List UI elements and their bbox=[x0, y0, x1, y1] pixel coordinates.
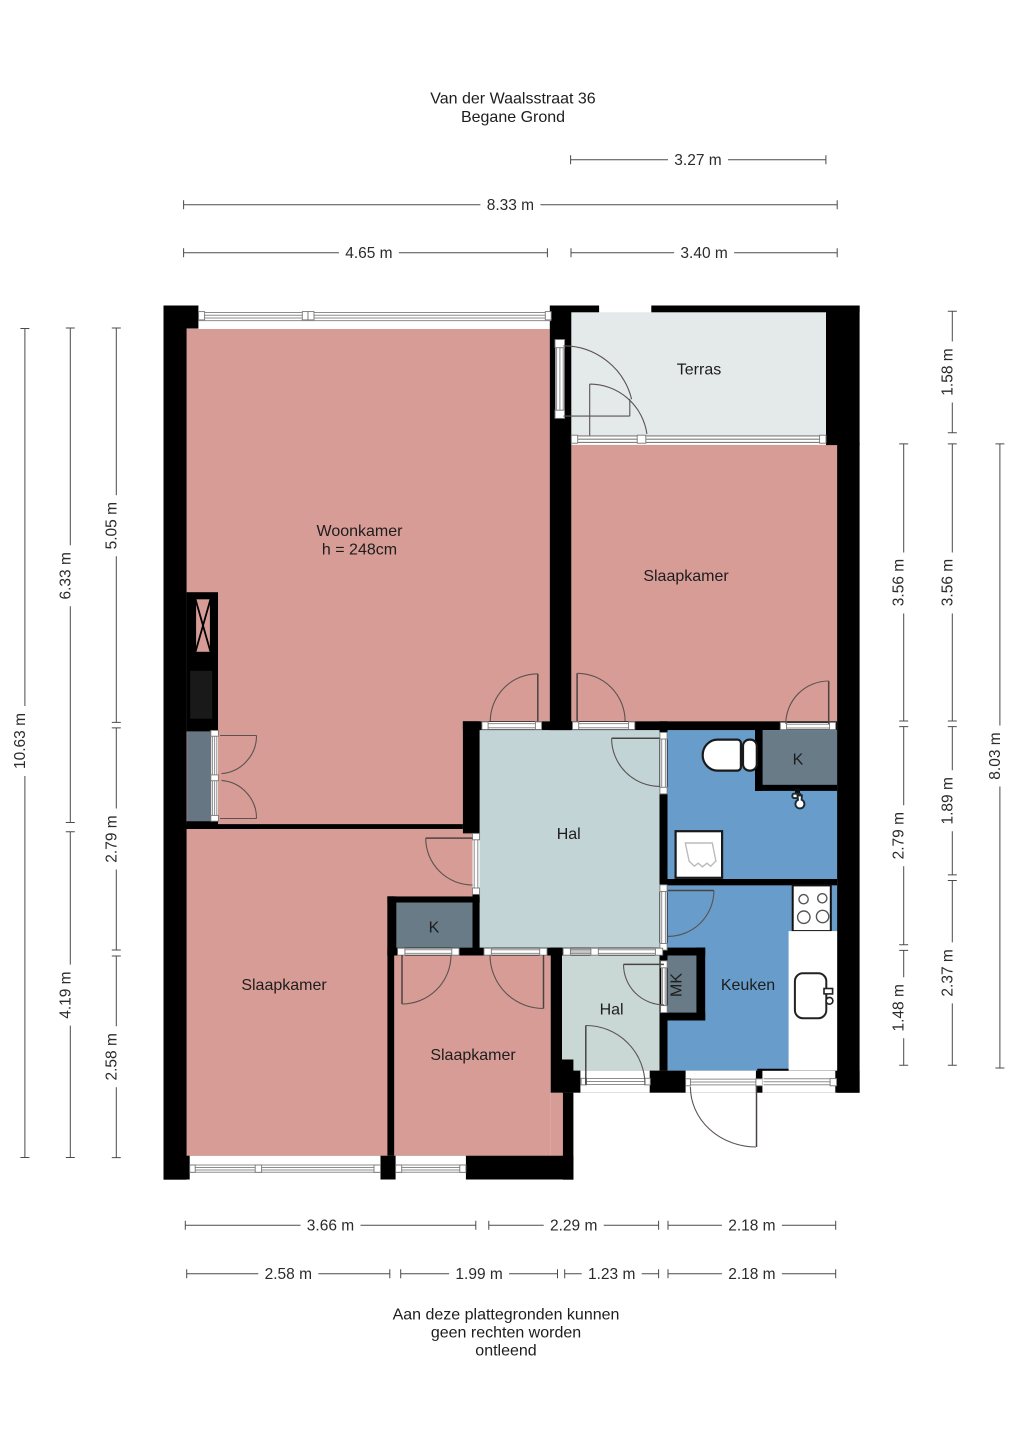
svg-text:Van der Waalsstraat 36: Van der Waalsstraat 36 bbox=[430, 91, 596, 108]
svg-text:3.27 m: 3.27 m bbox=[674, 152, 721, 169]
svg-text:Slaapkamer: Slaapkamer bbox=[430, 1047, 516, 1064]
svg-text:3.56 m: 3.56 m bbox=[939, 559, 956, 606]
svg-text:geen rechten worden: geen rechten worden bbox=[431, 1325, 581, 1342]
svg-text:3.56 m: 3.56 m bbox=[891, 559, 908, 606]
svg-text:8.03 m: 8.03 m bbox=[987, 732, 1004, 779]
svg-text:Slaapkamer: Slaapkamer bbox=[241, 977, 327, 994]
svg-text:K: K bbox=[429, 920, 440, 937]
svg-text:Hal: Hal bbox=[557, 826, 581, 843]
svg-text:1.23 m: 1.23 m bbox=[588, 1266, 635, 1283]
svg-text:8.33 m: 8.33 m bbox=[487, 197, 534, 214]
svg-text:10.63 m: 10.63 m bbox=[12, 713, 29, 769]
svg-text:Keuken: Keuken bbox=[721, 977, 775, 994]
svg-text:3.40 m: 3.40 m bbox=[680, 245, 727, 262]
svg-text:Slaapkamer: Slaapkamer bbox=[643, 568, 729, 585]
svg-text:6.33 m: 6.33 m bbox=[57, 552, 74, 599]
svg-text:Woonkamer: Woonkamer bbox=[317, 523, 404, 540]
svg-text:4.19 m: 4.19 m bbox=[57, 971, 74, 1018]
svg-text:1.89 m: 1.89 m bbox=[939, 777, 956, 824]
svg-text:1.48 m: 1.48 m bbox=[891, 984, 908, 1031]
svg-text:4.65 m: 4.65 m bbox=[345, 245, 392, 262]
svg-text:3.66 m: 3.66 m bbox=[307, 1218, 354, 1235]
svg-text:2.18 m: 2.18 m bbox=[728, 1266, 775, 1283]
svg-text:h = 248cm: h = 248cm bbox=[322, 542, 397, 559]
svg-text:Aan deze plattegronden kunnen: Aan deze plattegronden kunnen bbox=[393, 1307, 620, 1324]
svg-text:2.29 m: 2.29 m bbox=[550, 1218, 597, 1235]
svg-text:K: K bbox=[793, 752, 804, 769]
svg-text:5.05 m: 5.05 m bbox=[103, 502, 120, 549]
svg-text:1.58 m: 1.58 m bbox=[939, 348, 956, 395]
svg-text:2.18 m: 2.18 m bbox=[728, 1218, 775, 1235]
svg-text:ontleend: ontleend bbox=[475, 1343, 536, 1360]
svg-text:2.79 m: 2.79 m bbox=[103, 815, 120, 862]
svg-text:1.99 m: 1.99 m bbox=[455, 1266, 502, 1283]
svg-text:Terras: Terras bbox=[677, 362, 721, 379]
svg-text:2.58 m: 2.58 m bbox=[265, 1266, 312, 1283]
svg-text:Begane Grond: Begane Grond bbox=[461, 109, 565, 126]
svg-text:2.37 m: 2.37 m bbox=[939, 949, 956, 996]
svg-text:MK: MK bbox=[669, 973, 686, 997]
svg-text:Hal: Hal bbox=[600, 1002, 624, 1019]
svg-text:2.79 m: 2.79 m bbox=[891, 812, 908, 859]
svg-text:2.58 m: 2.58 m bbox=[103, 1033, 120, 1080]
